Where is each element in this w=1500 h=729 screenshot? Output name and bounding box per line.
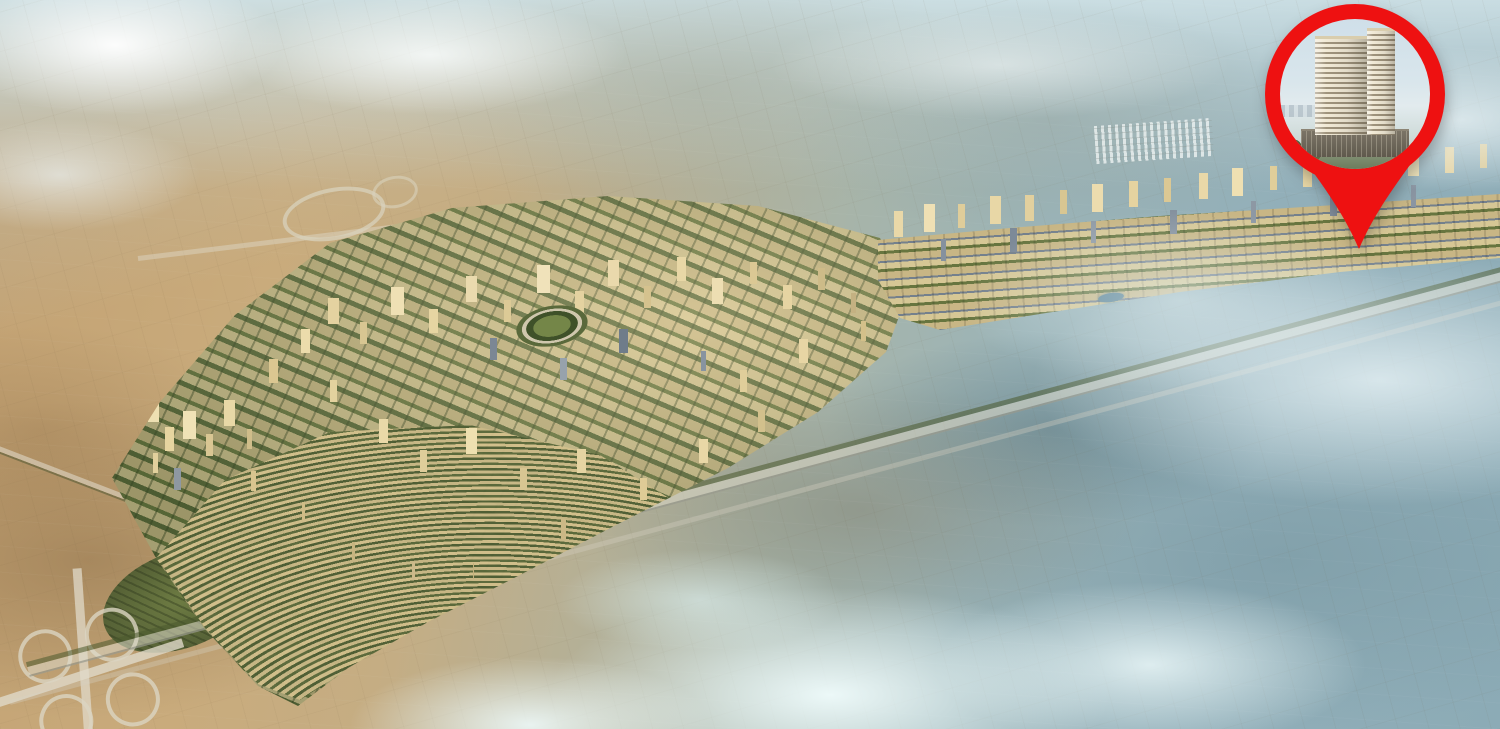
pin-photo-tower — [1280, 19, 1430, 169]
tower-building — [1315, 31, 1395, 135]
location-pin[interactable] — [1262, 2, 1458, 254]
tower-block-left — [1315, 36, 1367, 135]
tower-block-right — [1367, 28, 1395, 135]
aerial-masterplan-render — [0, 0, 1500, 729]
